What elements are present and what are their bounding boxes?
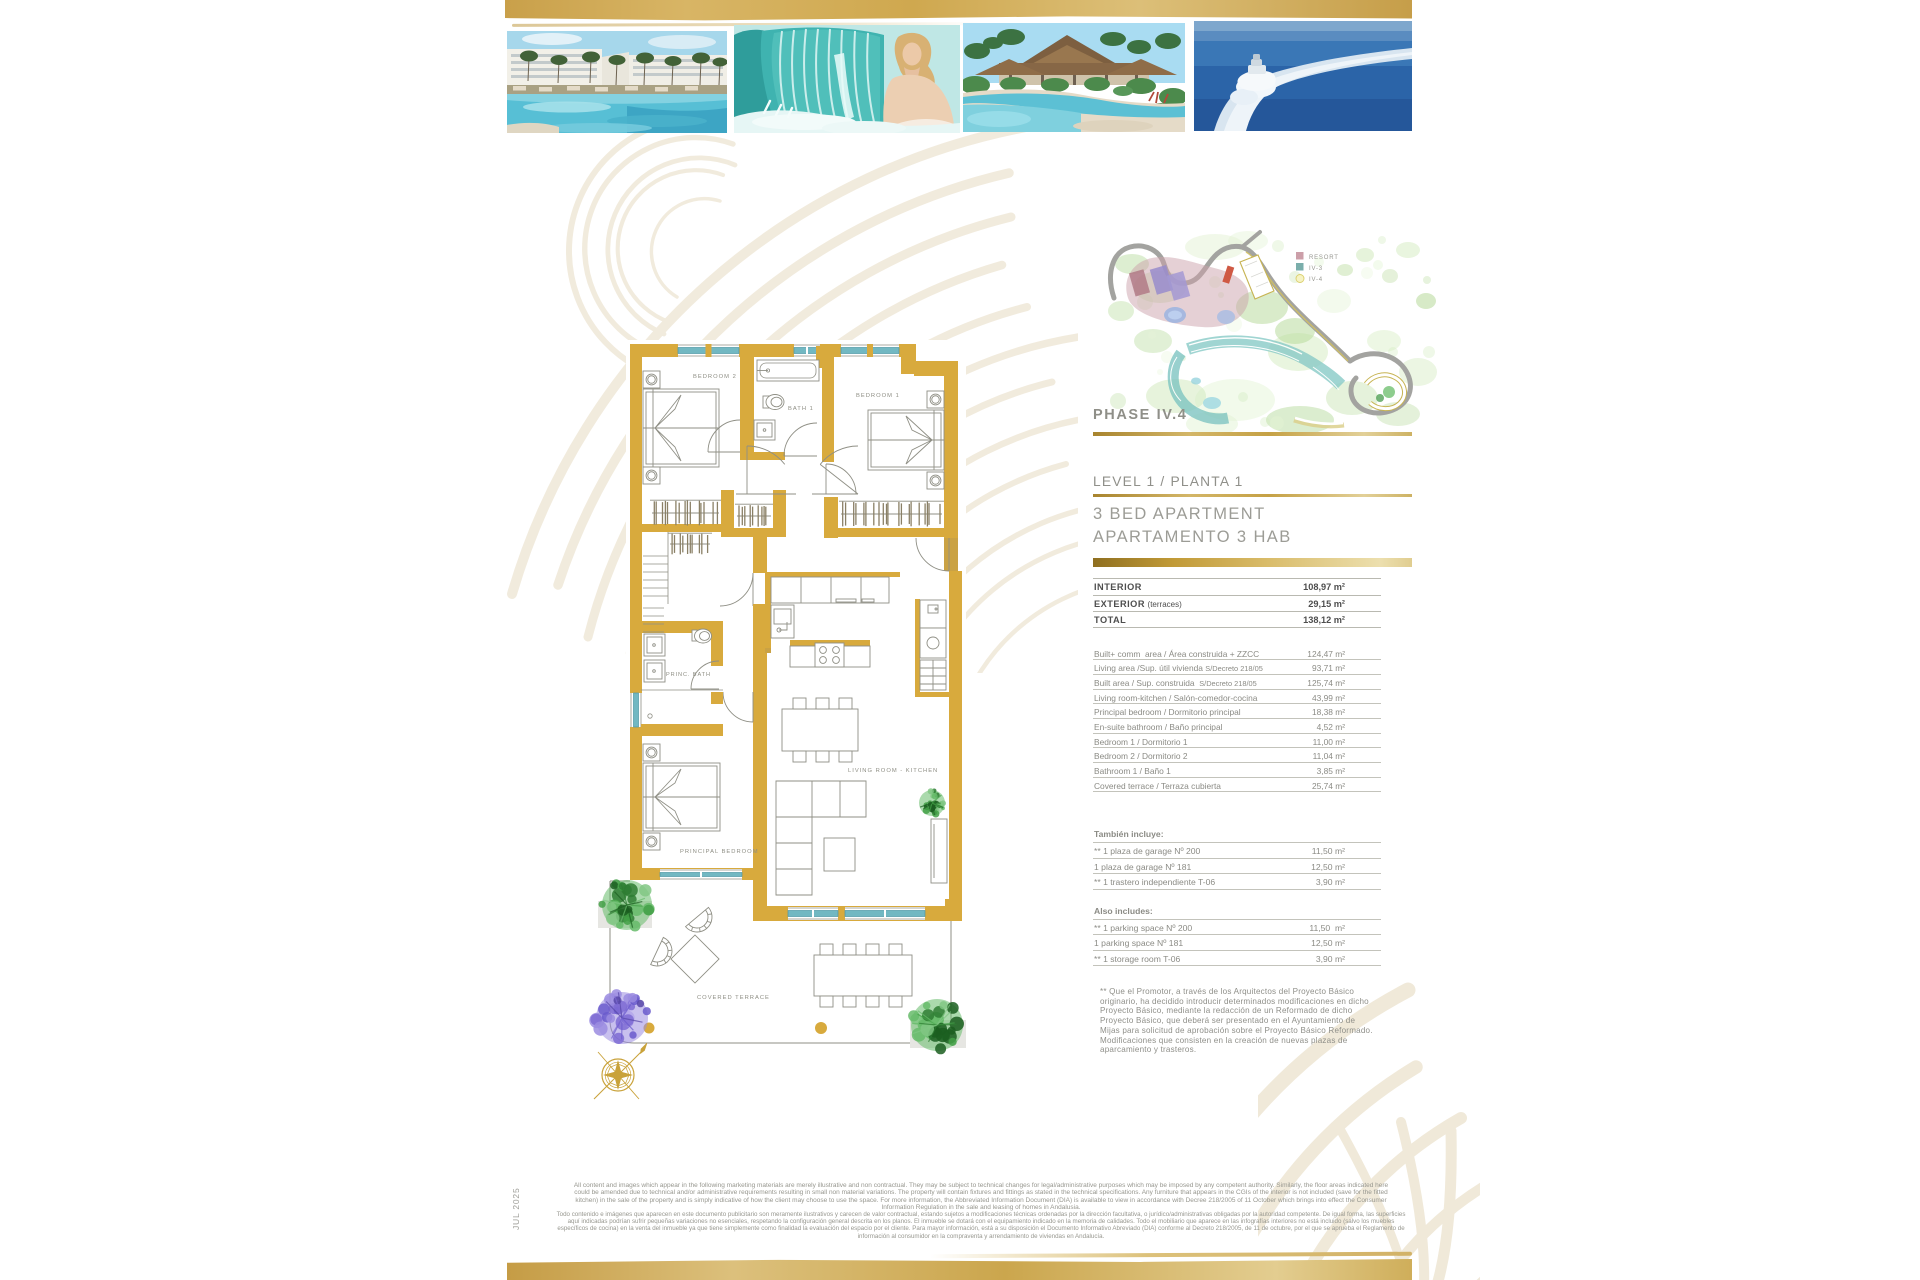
svg-text:COVERED TERRACE: COVERED TERRACE [697, 995, 770, 1001]
svg-text:BEDROOM 1: BEDROOM 1 [856, 393, 900, 399]
svg-text:BATH 1: BATH 1 [788, 406, 814, 412]
svg-text:IV-4: IV-4 [1309, 277, 1323, 283]
svg-text:PRINCIPAL BEDROOM: PRINCIPAL BEDROOM [680, 849, 759, 855]
svg-text:IV-3: IV-3 [1309, 266, 1323, 272]
svg-text:LIVING ROOM - KITCHEN: LIVING ROOM - KITCHEN [848, 768, 938, 774]
svg-text:PRINC. BATH: PRINC. BATH [666, 672, 711, 678]
svg-text:BEDROOM 2: BEDROOM 2 [693, 374, 737, 380]
svg-text:RESORT: RESORT [1309, 255, 1339, 261]
